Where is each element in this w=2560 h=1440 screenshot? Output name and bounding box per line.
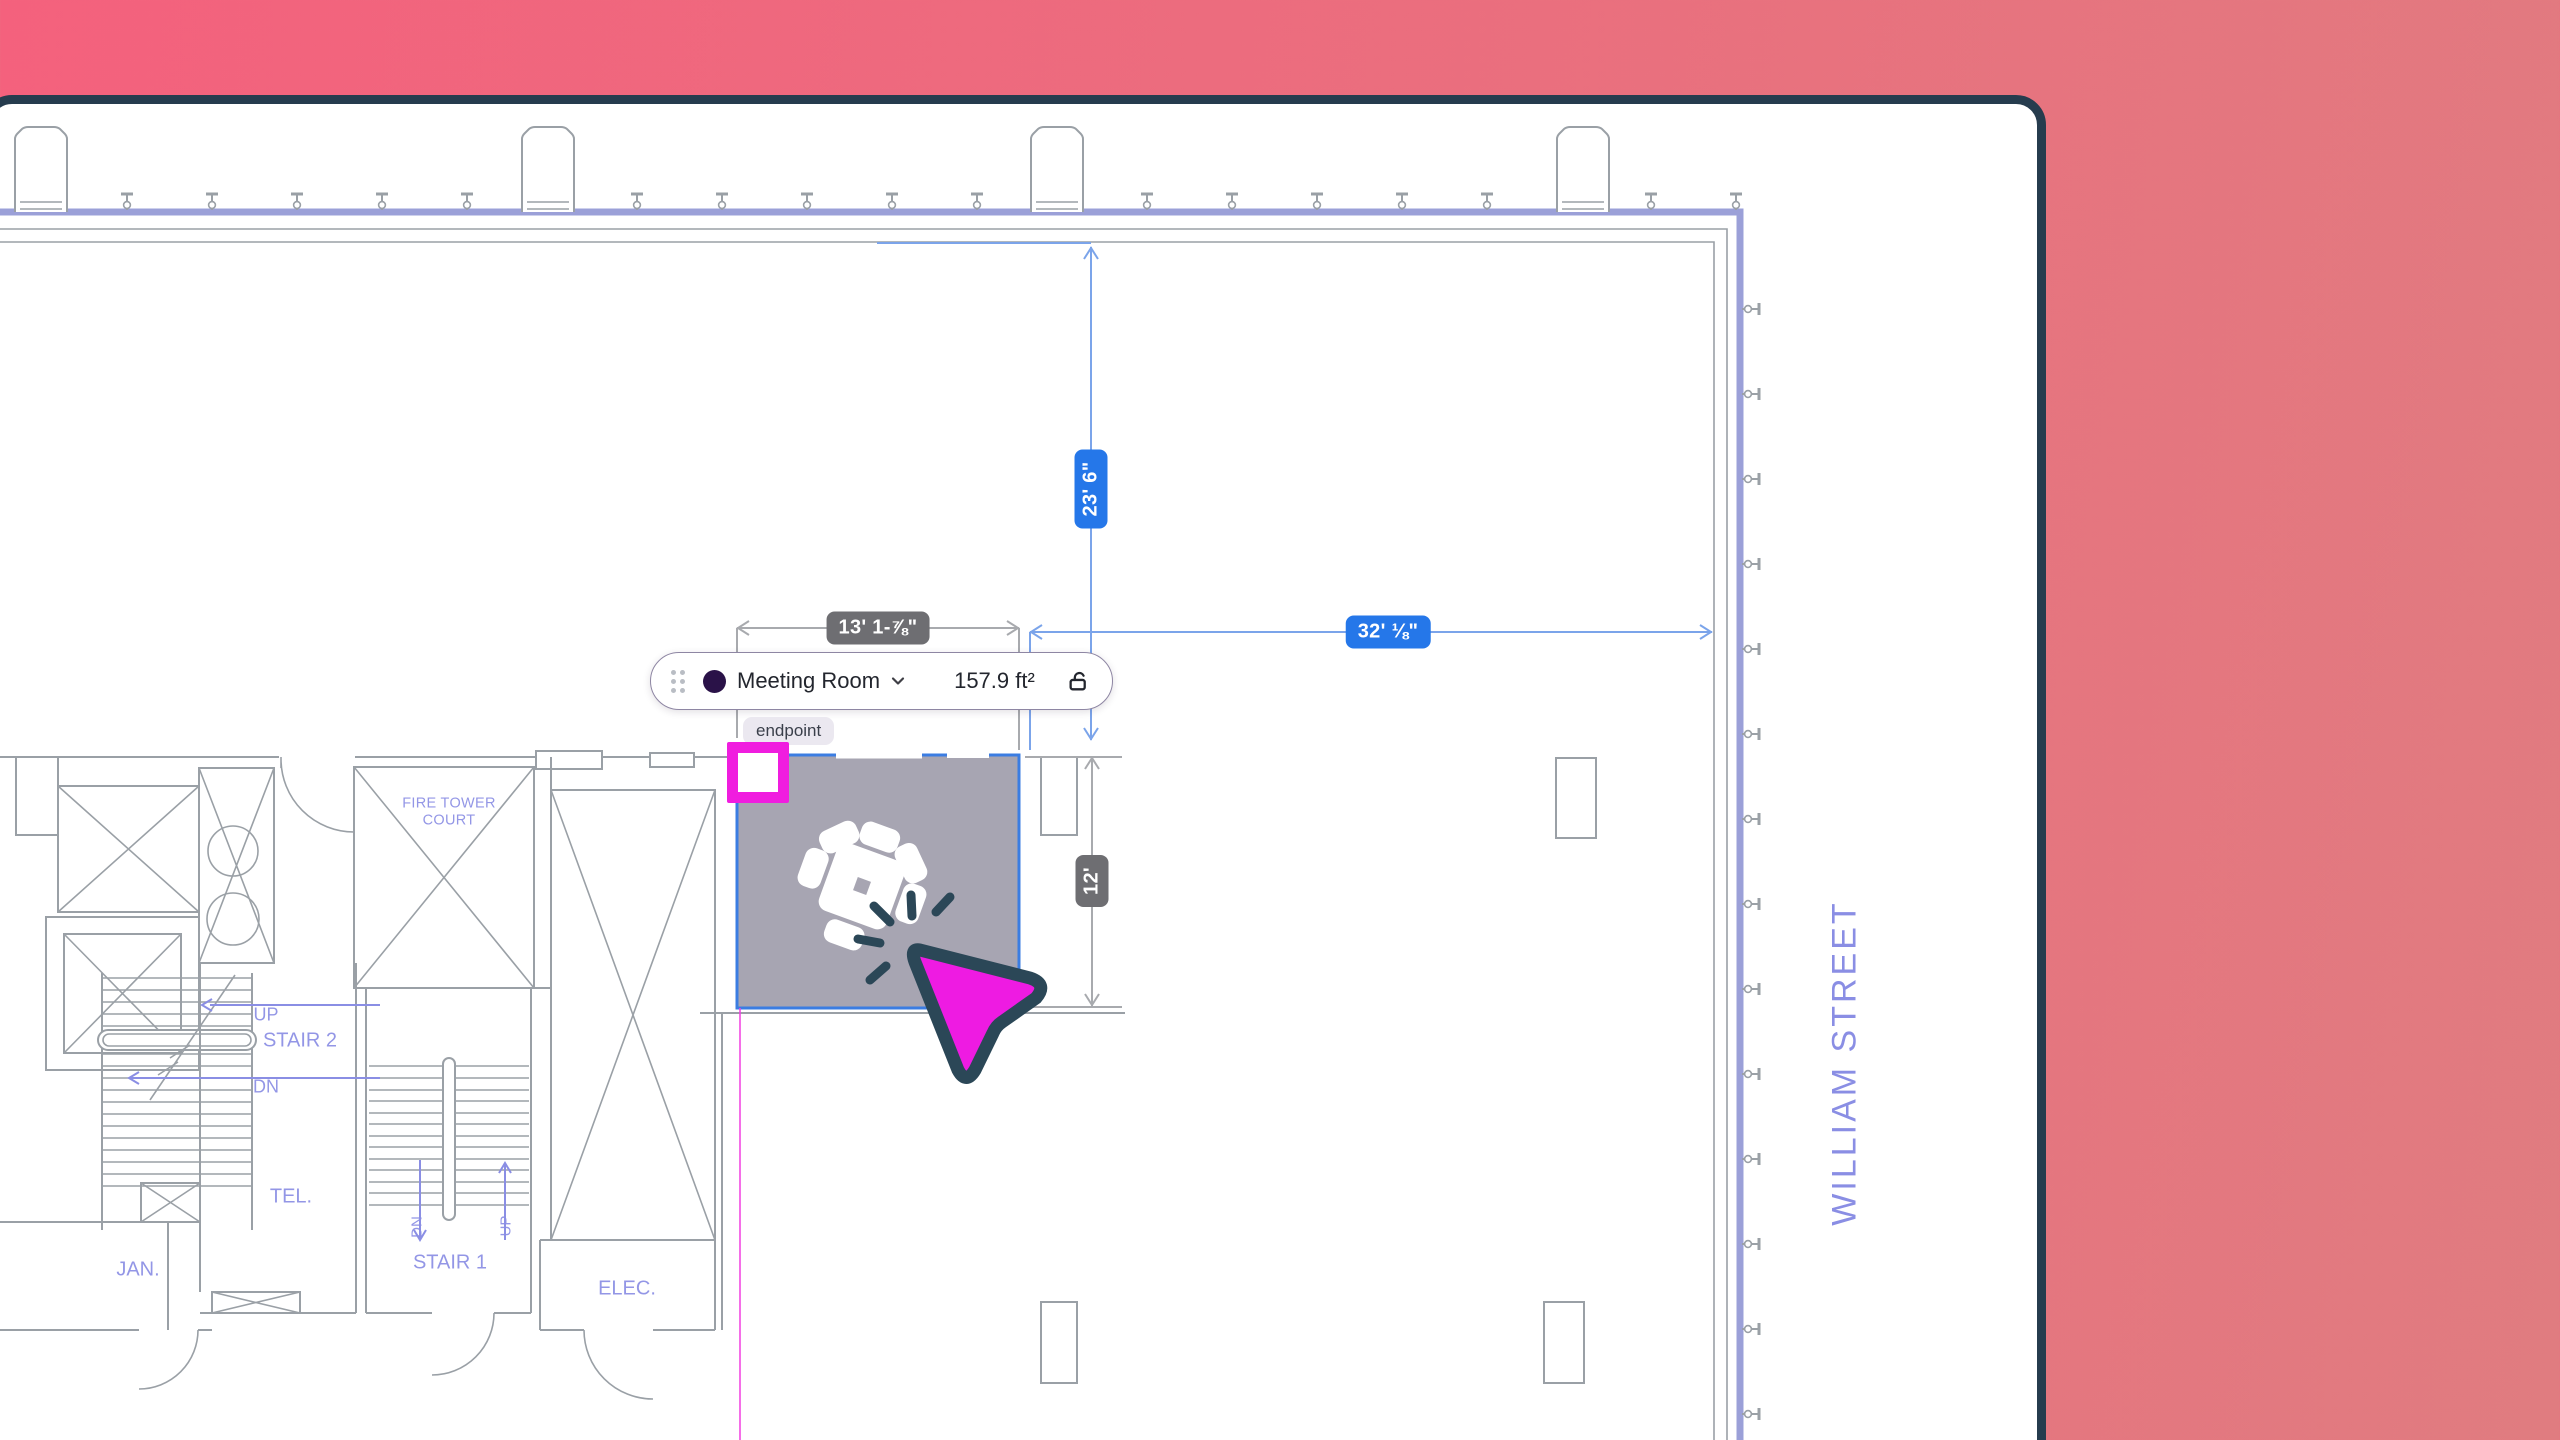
drawing-canvas[interactable]	[0, 95, 2046, 1440]
label-stair1-dn: DN	[409, 1216, 426, 1238]
dimension-badge-room-height[interactable]: 12'	[1076, 855, 1109, 907]
unlock-icon	[1067, 669, 1092, 694]
label-stair1-up: UP	[498, 1216, 515, 1237]
dimension-badge-room-width[interactable]: 13' 1-⅞"	[827, 612, 930, 645]
label-fire-tower-court: FIRE TOWER COURT	[402, 796, 496, 831]
label-stair2-dn: DN	[253, 1077, 279, 1098]
chevron-down-icon[interactable]	[888, 671, 908, 691]
endpoint-handle[interactable]	[727, 742, 789, 803]
dimension-badge-right-offset[interactable]: 32' ⅛"	[1346, 616, 1431, 649]
label-jan: JAN.	[116, 1259, 159, 1282]
room-color-dot	[703, 670, 726, 693]
label-stair1: STAIR 1	[413, 1252, 487, 1275]
room-name-selector[interactable]: Meeting Room	[737, 668, 880, 694]
drag-handle-icon[interactable]	[671, 670, 685, 693]
lock-toggle-button[interactable]	[1067, 669, 1092, 694]
label-tel: TEL.	[270, 1186, 312, 1209]
room-selection-pill[interactable]: Meeting Room 157.9 ft²	[650, 652, 1113, 710]
label-stair2: STAIR 2	[263, 1030, 337, 1053]
label-stair2-up: UP	[253, 1005, 278, 1026]
street-label: WILLIAM STREET	[1826, 900, 1865, 1225]
endpoint-tooltip: endpoint	[743, 717, 834, 745]
desktop-background: { "selection_pill": { "room_name": "Meet…	[0, 0, 2560, 1440]
label-elec: ELEC.	[598, 1278, 656, 1301]
room-area-value: 157.9 ft²	[954, 668, 1035, 694]
dimension-badge-top-offset[interactable]: 23' 6"	[1075, 450, 1108, 529]
